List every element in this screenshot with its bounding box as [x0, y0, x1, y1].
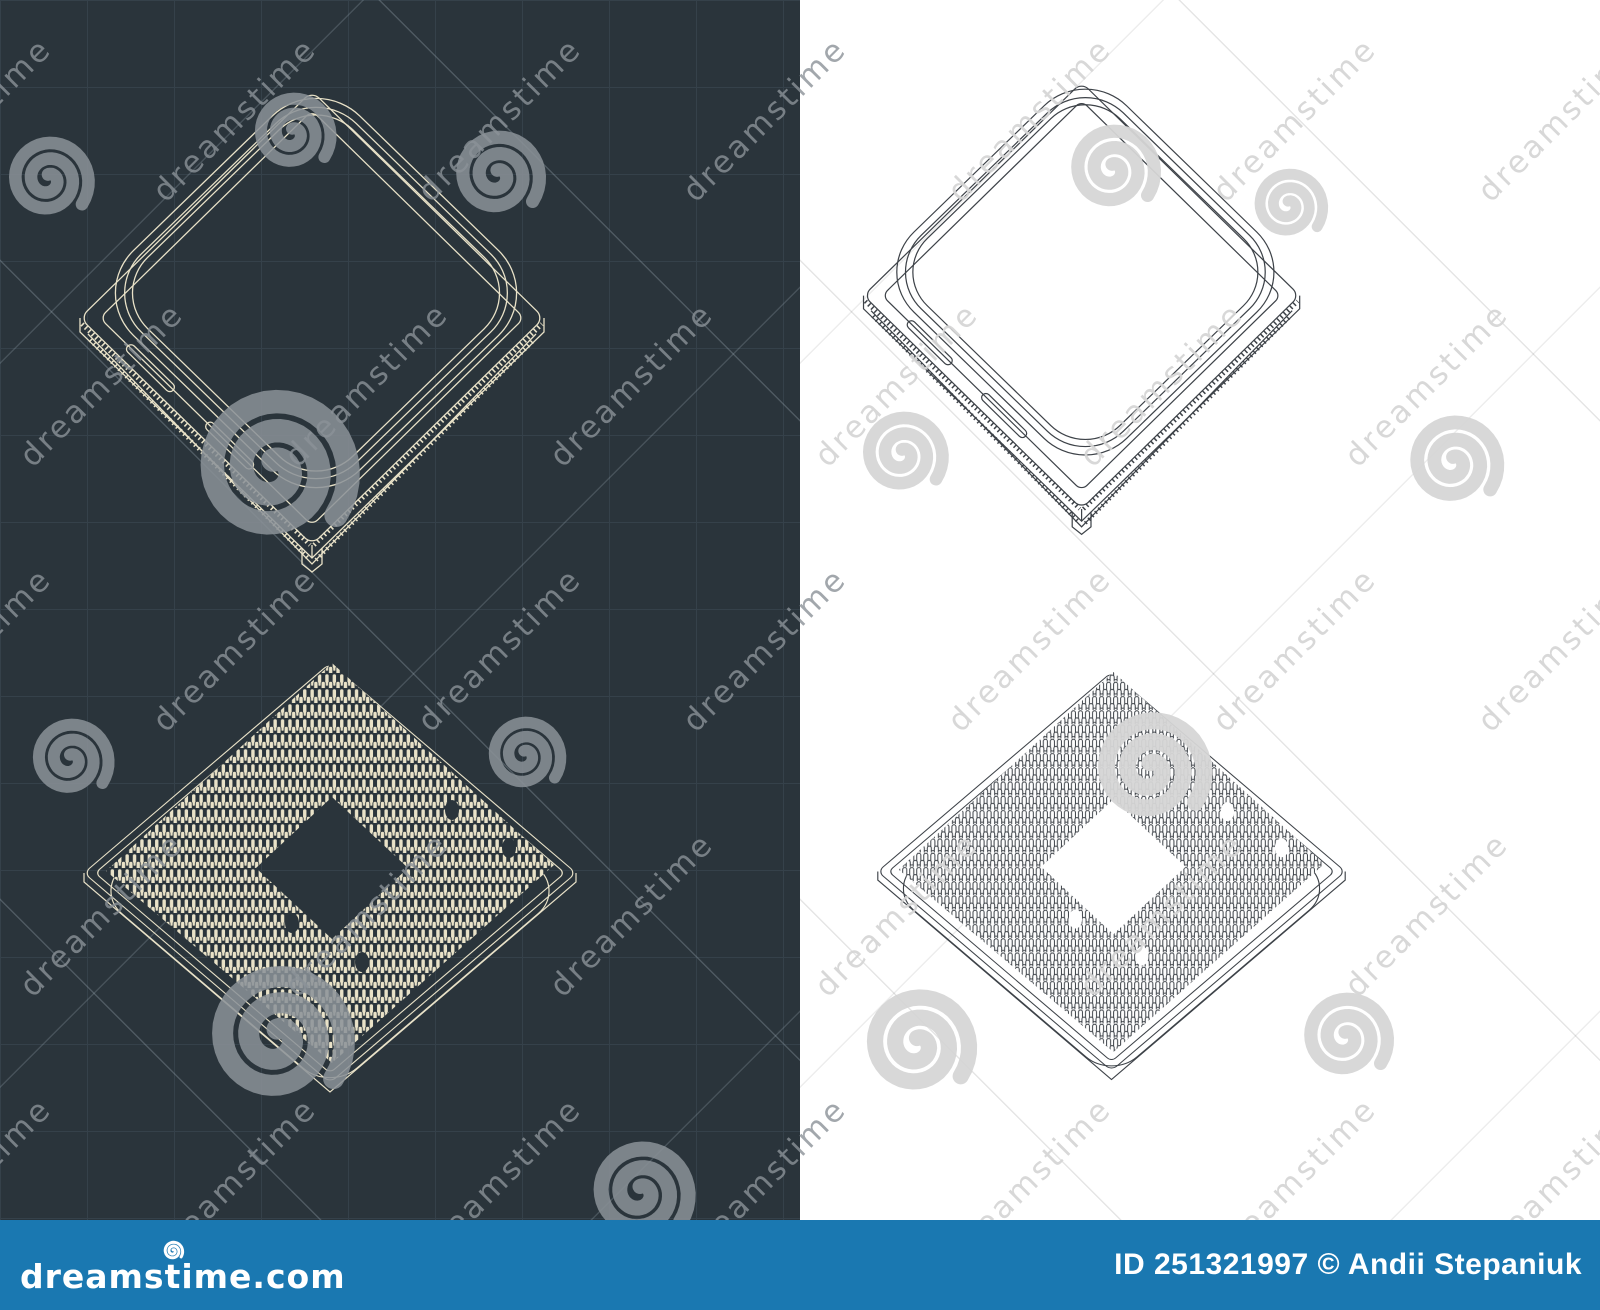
dreamstime-spiral-icon [158, 1236, 188, 1271]
image-credit-text: ID 251321997 © Andii Stepaniuk [1114, 1248, 1582, 1282]
cpu-drawings [0, 0, 1600, 1310]
figure-cpu-bottom-light [878, 672, 1346, 1080]
figure-cpu-top-dark [80, 74, 544, 572]
stock-image-canvas: dreamstimedreamstimedreamstimedreamstime… [0, 0, 1600, 1310]
footer-bar: dreamstime.com ID 251321997 © Andii Step… [0, 1220, 1600, 1310]
figure-cpu-top-light [864, 66, 1300, 535]
figure-cpu-bottom-dark [84, 663, 576, 1092]
dreamstime-logo: dreamstime.com [20, 1238, 346, 1293]
